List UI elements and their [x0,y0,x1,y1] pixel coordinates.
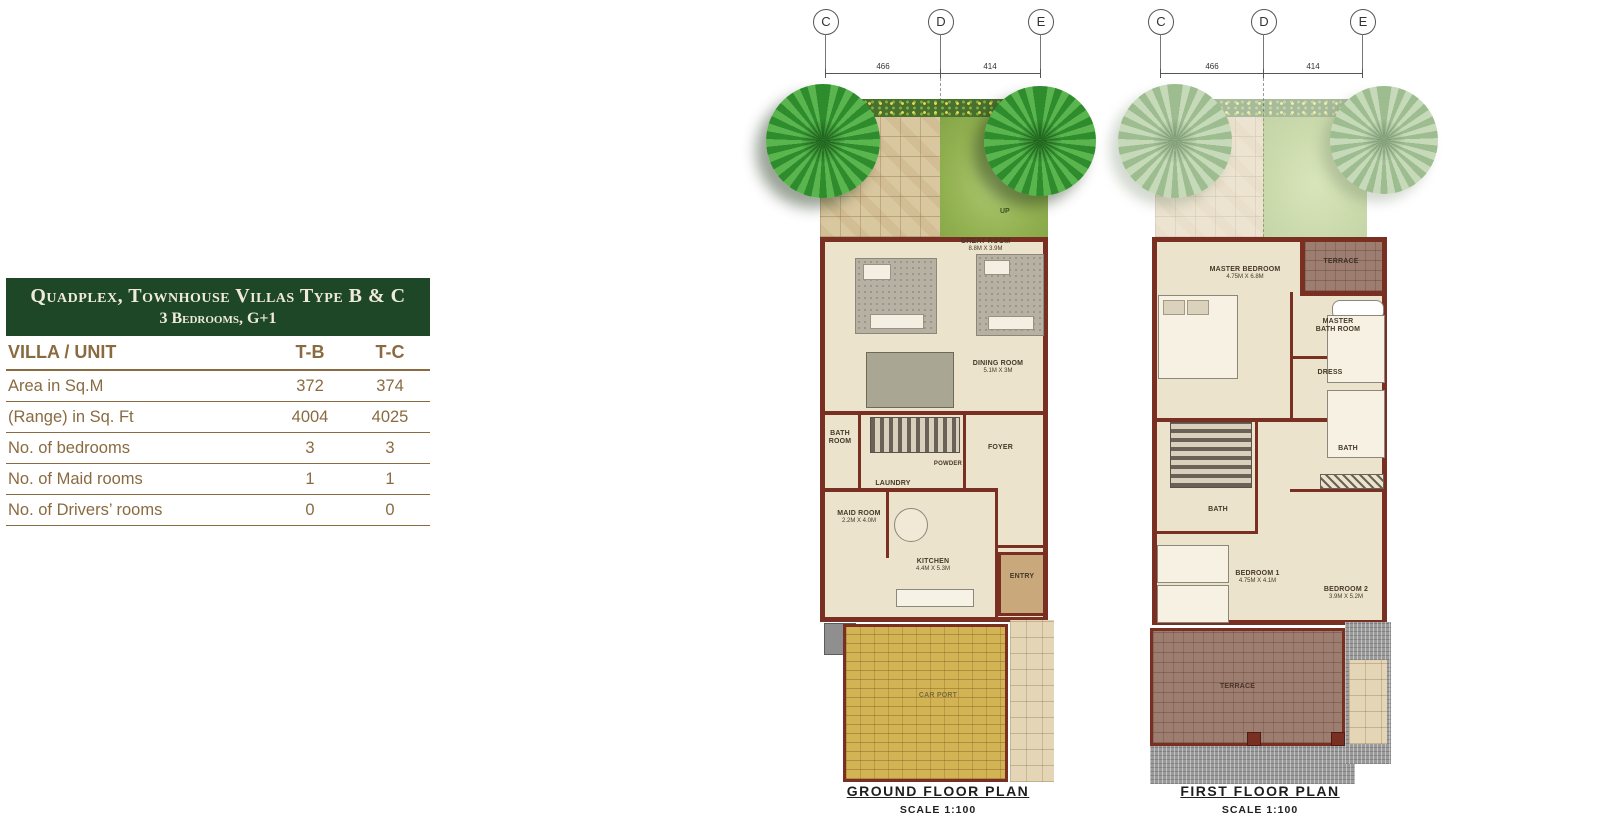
row-value-tc: 3 [350,439,430,458]
dim-tick [1263,69,1264,78]
room-label-bedroom2: BEDROOM 2 3.9m x 5.2m [1310,586,1382,602]
row-value-tb: 372 [270,377,350,396]
sofa [988,316,1034,330]
column-header-tc: T-C [350,342,430,363]
table-row: No. of bedrooms 3 3 [6,433,430,464]
room-label-great-room: GREAT ROOM 8.8m x 3.9m [918,238,1053,254]
dim-label-414: 414 [1283,62,1343,71]
table-subtitle: 3 Bedrooms, G+1 [10,310,426,328]
spec-table: Quadplex, Townhouse Villas Type B & C 3 … [6,278,430,526]
interior-wall [858,411,861,491]
dimension-line [825,73,1040,74]
plan-caption: GROUND FLOOR PLAN [798,783,1078,799]
tree [984,86,1096,196]
room-label-entry: ENTRY [996,573,1048,581]
ground-floor-plan: C D E 466 414 UP GREAT ROOM 8.8m x 3.9m … [758,0,1108,836]
table-row: (Range) in Sq. Ft 4004 4025 [6,402,430,433]
room-size: 4.4m x 5.3m [898,566,968,573]
pergola-shade [1150,746,1355,784]
sofa [984,260,1010,275]
staircase [870,417,960,453]
plan-scale: SCALE 1:100 [1120,804,1400,816]
row-label: No. of bedrooms [6,439,270,458]
open-hatch [1320,474,1384,489]
room-name: KITCHEN [917,558,950,565]
up-label: UP [1000,208,1010,215]
terrace-top-area [1303,240,1384,293]
terrace-post [1247,732,1261,746]
dim-tick [1160,69,1161,78]
table-title: Quadplex, Townhouse Villas Type B & C [10,285,426,308]
interior-wall [963,411,966,491]
kitchen-counter [896,589,974,607]
room-label-terrace-bottom: TERRACE [1190,683,1285,691]
spec-table-header: Quadplex, Townhouse Villas Type B & C 3 … [6,278,430,336]
column-header-villa-unit: VILLA / UNIT [6,342,270,363]
room-label-master-bath: MASTER BATH ROOM [1312,318,1364,335]
dim-tick [1040,69,1041,78]
room-label-terrace-top: TERRACE [1310,258,1372,266]
interior-wall [1152,531,1258,534]
interior-wall [820,411,1048,415]
grid-bubble-c: C [813,9,839,35]
first-floor-plan: C D E 466 414 MASTER BEDROOM 4.75m x 6.8… [1095,0,1445,836]
room-label-dining: DINING ROOM 5.1m x 3m [953,360,1043,376]
room-label-maid: MAID ROOM 2.2m x 4.0m [830,510,888,526]
room-label-bath-right: BATH [1325,445,1371,453]
room-name: DINING ROOM [973,360,1023,367]
dim-tick [825,69,826,78]
spec-table-body: VILLA / UNIT T-B T-C Area in Sq.M 372 37… [6,336,430,526]
bed [1157,545,1229,583]
sofa [863,264,891,280]
room-size: 3.9m x 5.2m [1310,594,1382,601]
plan-caption: FIRST FLOOR PLAN [1120,783,1400,799]
row-value-tb: 1 [270,470,350,489]
room-label-dress: DRESS [1300,369,1360,377]
tree [1118,84,1232,198]
room-label-bath-left: BATH [1195,506,1241,514]
dining-table [866,352,954,408]
row-value-tc: 0 [350,501,430,520]
room-size: 8.8m x 3.9m [918,246,1053,253]
car-port [843,624,1008,782]
room-name: MASTER BEDROOM [1210,266,1281,273]
row-value-tb: 0 [270,501,350,520]
interior-wall [820,488,998,492]
room-label-foyer: FOYER [973,444,1028,452]
pillow [1163,300,1185,315]
room-name: MAID ROOM [837,510,880,517]
plan-scale: SCALE 1:100 [798,804,1078,816]
row-label: Area in Sq.M [6,377,270,396]
staircase [1170,422,1252,488]
tree [766,84,880,198]
room-label-master-bedroom: MASTER BEDROOM 4.75m x 6.8m [1190,266,1300,282]
side-path [1010,620,1054,782]
row-value-tb: 4004 [270,408,350,427]
grid-bubble-d: D [1251,9,1277,35]
dim-label-466: 466 [1182,62,1242,71]
sofa [870,314,924,329]
room-label-laundry: LAUNDRY [863,480,923,488]
table-header-row: VILLA / UNIT T-B T-C [6,336,430,371]
dim-label-414: 414 [960,62,1020,71]
grid-bubble-e: E [1350,9,1376,35]
dim-tick [1362,69,1363,78]
interior-wall [1255,418,1258,534]
interior-wall [1290,489,1387,492]
room-label-powder: POWDER [923,461,973,468]
table-row: No. of Maid rooms 1 1 [6,464,430,495]
room-name: GREAT ROOM [961,238,1011,245]
bed [1157,585,1229,623]
room-name: BEDROOM 1 [1235,570,1279,577]
room-size: 4.75m x 6.8m [1190,274,1300,281]
column-header-tb: T-B [270,342,350,363]
grid-bubble-d: D [928,9,954,35]
terrace-post [1331,732,1345,746]
room-label-bedroom1: BEDROOM 1 4.75m x 4.1m [1220,570,1295,586]
table-row: Area in Sq.M 372 374 [6,371,430,402]
room-label-kitchen: KITCHEN 4.4m x 5.3m [898,558,968,574]
tree [1330,86,1438,194]
room-size: 2.2m x 4.0m [830,518,888,525]
grid-bubble-c: C [1148,9,1174,35]
room-size: 4.75m x 4.1m [1220,578,1295,585]
dimension-line [1160,73,1362,74]
row-label: (Range) in Sq. Ft [6,408,270,427]
pillow [1187,300,1209,315]
grid-bubble-e: E [1028,9,1054,35]
interior-wall [995,545,1048,548]
room-label-bath: BATH ROOM [820,430,860,447]
side-path [1349,660,1387,744]
row-label: No. of Drivers’ rooms [6,501,270,520]
row-label: No. of Maid rooms [6,470,270,489]
row-value-tc: 1 [350,470,430,489]
room-name: BEDROOM 2 [1324,586,1368,593]
row-value-tc: 4025 [350,408,430,427]
dim-tick [940,69,941,78]
row-value-tb: 3 [270,439,350,458]
room-size: 5.1m x 3m [953,368,1043,375]
row-value-tc: 374 [350,377,430,396]
dim-label-466: 466 [853,62,913,71]
kitchen-table [894,508,928,542]
room-label-carport: CAR PORT [888,692,988,700]
entry-vestibule [998,552,1046,616]
table-row: No. of Drivers’ rooms 0 0 [6,495,430,526]
